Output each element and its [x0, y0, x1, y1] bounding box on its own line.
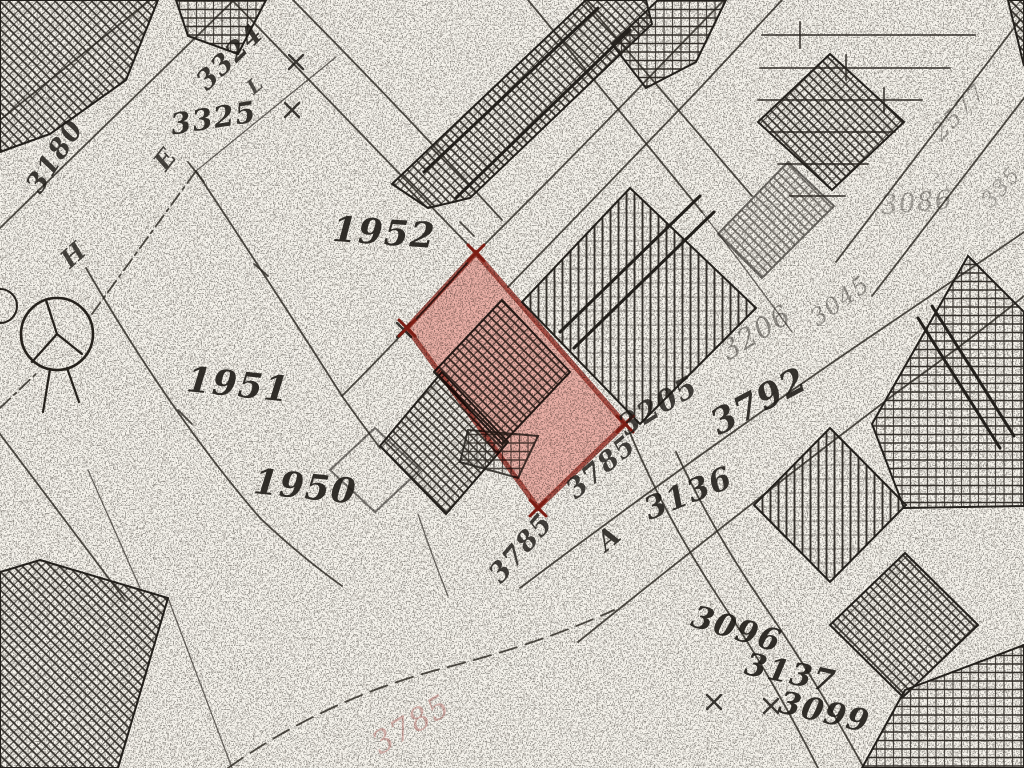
parcel-label-3086: 3086 [880, 185, 955, 221]
map-canvas: 3324L33253180EH195219511950378537853205A… [0, 0, 1024, 768]
parcel-label-1952: 1952 [331, 209, 437, 257]
cadastral-map: 3324L33253180EH195219511950378537853205A… [0, 0, 1024, 768]
